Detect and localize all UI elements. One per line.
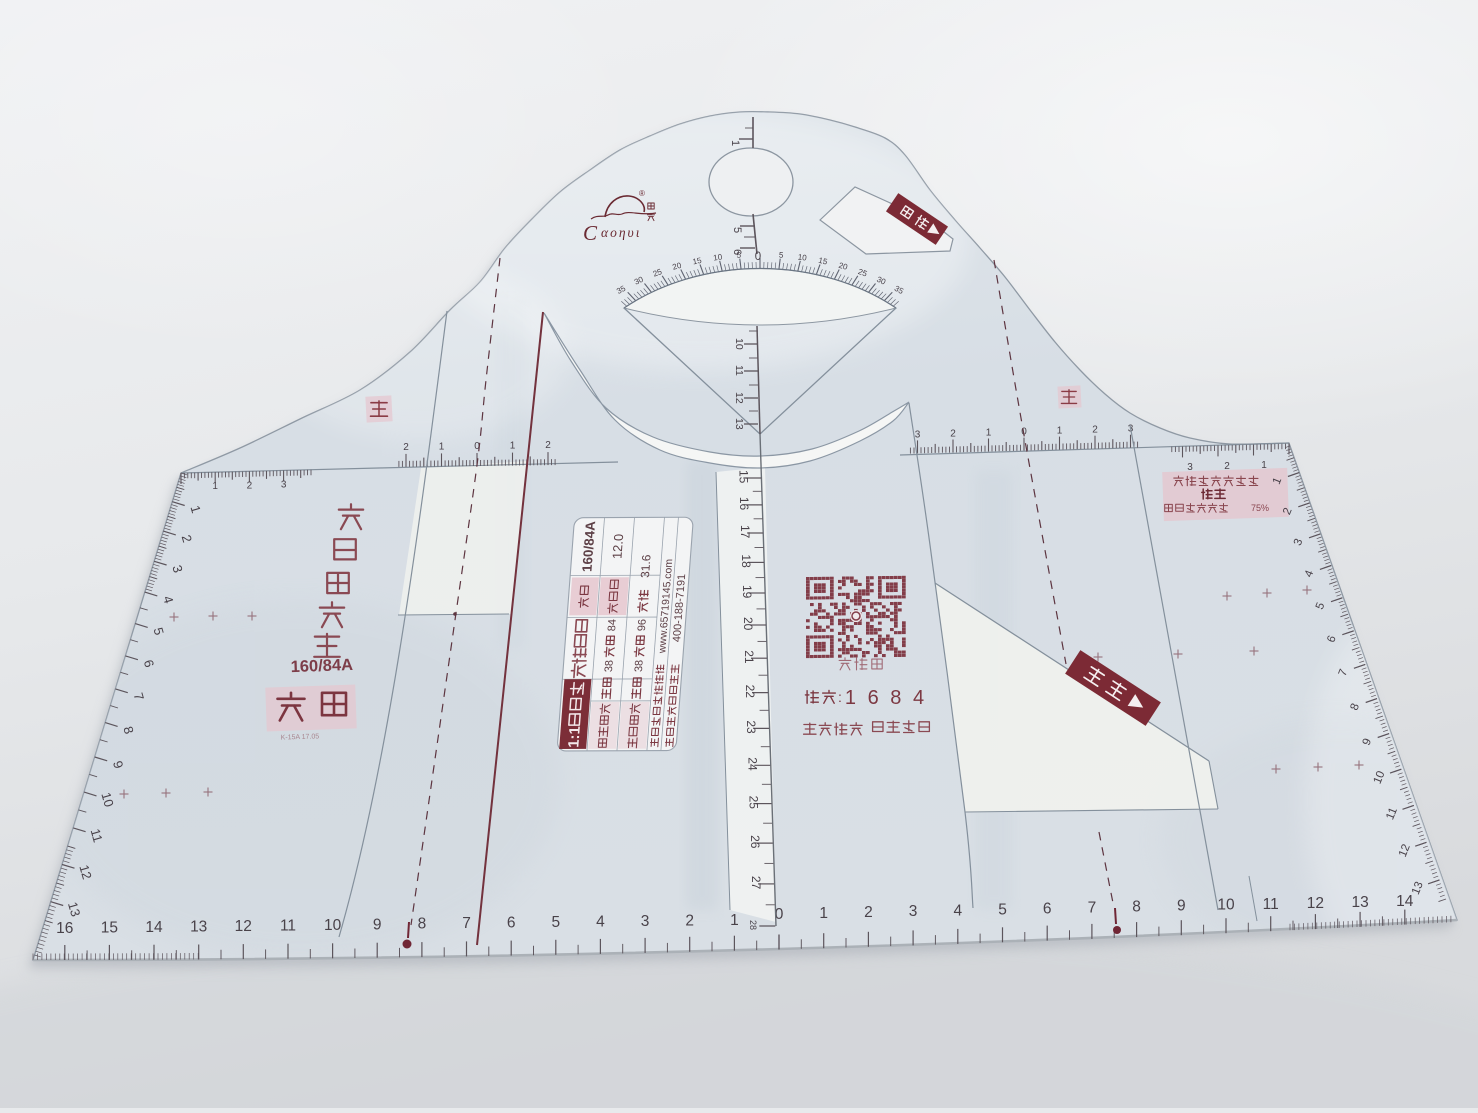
svg-text:3: 3 xyxy=(281,479,287,490)
svg-text:18: 18 xyxy=(739,554,753,568)
svg-text:12.0: 12.0 xyxy=(609,534,626,559)
svg-text:24: 24 xyxy=(745,757,759,771)
svg-text:C: C xyxy=(583,221,598,245)
svg-text:9: 9 xyxy=(1177,898,1186,915)
svg-text:26: 26 xyxy=(748,835,762,849)
svg-text:21: 21 xyxy=(742,650,756,664)
svg-text:11: 11 xyxy=(733,365,745,376)
svg-text:2: 2 xyxy=(685,913,694,930)
svg-text:14: 14 xyxy=(145,919,163,936)
svg-text:11: 11 xyxy=(280,917,296,934)
svg-text:3: 3 xyxy=(915,429,921,440)
svg-text:10: 10 xyxy=(797,252,808,262)
svg-text:K-15A 17.05: K-15A 17.05 xyxy=(281,733,320,741)
svg-text:13: 13 xyxy=(190,918,207,935)
svg-text:5: 5 xyxy=(998,901,1007,918)
svg-text:2: 2 xyxy=(247,480,253,491)
svg-text:2: 2 xyxy=(403,442,409,453)
svg-text:16: 16 xyxy=(56,920,73,937)
svg-text:96: 96 xyxy=(636,619,649,631)
svg-text:1: 1 xyxy=(439,441,445,452)
svg-text:6: 6 xyxy=(1043,900,1052,917)
svg-text:1: 1 xyxy=(729,140,741,146)
svg-text:6: 6 xyxy=(507,915,516,932)
svg-text:14: 14 xyxy=(1396,893,1414,910)
svg-text:31.6: 31.6 xyxy=(638,554,654,578)
svg-text:5: 5 xyxy=(731,227,743,233)
svg-text:15: 15 xyxy=(101,920,118,937)
svg-text:19: 19 xyxy=(740,585,754,599)
svg-text:4: 4 xyxy=(596,914,605,931)
svg-text:5: 5 xyxy=(551,914,560,931)
svg-text:25: 25 xyxy=(747,796,761,810)
svg-text:1: 1 xyxy=(1057,426,1063,437)
svg-text:1: 1 xyxy=(819,905,828,922)
svg-text:1: 1 xyxy=(730,912,739,929)
svg-text:2: 2 xyxy=(1092,425,1098,436)
svg-text:22: 22 xyxy=(743,685,757,699)
svg-text:10: 10 xyxy=(1217,897,1235,914)
svg-text::: : xyxy=(838,689,842,705)
svg-text:28: 28 xyxy=(748,920,758,930)
svg-text:7: 7 xyxy=(1088,900,1097,917)
svg-text:αoηυι: αoηυι xyxy=(601,225,641,240)
svg-text:2: 2 xyxy=(545,440,551,451)
svg-text:4: 4 xyxy=(953,902,962,919)
svg-text:8: 8 xyxy=(418,916,427,933)
svg-text:1: 1 xyxy=(986,428,992,439)
svg-text:9: 9 xyxy=(373,916,382,933)
svg-text:12: 12 xyxy=(1307,895,1324,912)
svg-text:3: 3 xyxy=(641,913,650,930)
svg-text:84: 84 xyxy=(606,619,619,631)
svg-text:10: 10 xyxy=(713,252,724,262)
svg-text:160/84A: 160/84A xyxy=(290,656,353,676)
svg-text:20: 20 xyxy=(741,617,755,631)
svg-text:13: 13 xyxy=(733,418,745,430)
svg-text:1 6 8 4: 1 6 8 4 xyxy=(845,687,927,709)
svg-text:2: 2 xyxy=(864,904,873,921)
svg-text:7: 7 xyxy=(462,915,471,932)
svg-text:2: 2 xyxy=(950,429,956,440)
svg-text:11: 11 xyxy=(1263,896,1279,913)
svg-text:8: 8 xyxy=(1132,899,1141,916)
svg-text:15: 15 xyxy=(736,470,750,484)
svg-text:17: 17 xyxy=(738,525,752,539)
svg-text:23: 23 xyxy=(744,720,758,734)
svg-text:12: 12 xyxy=(235,918,252,935)
svg-text:12: 12 xyxy=(733,392,745,404)
svg-text:1:1: 1:1 xyxy=(565,726,584,748)
svg-text:16: 16 xyxy=(737,497,751,511)
svg-text:13: 13 xyxy=(1351,894,1368,911)
svg-text:38: 38 xyxy=(603,660,616,672)
svg-text:10: 10 xyxy=(324,917,342,934)
svg-text:10: 10 xyxy=(733,338,745,350)
svg-text:1: 1 xyxy=(510,441,516,452)
svg-text:38: 38 xyxy=(633,660,646,672)
svg-text:3: 3 xyxy=(909,903,918,920)
svg-text:®: ® xyxy=(639,189,645,198)
svg-text:75%: 75% xyxy=(1251,503,1269,513)
svg-text:1: 1 xyxy=(212,481,218,492)
svg-text:0: 0 xyxy=(755,251,761,263)
svg-text:27: 27 xyxy=(749,876,763,890)
